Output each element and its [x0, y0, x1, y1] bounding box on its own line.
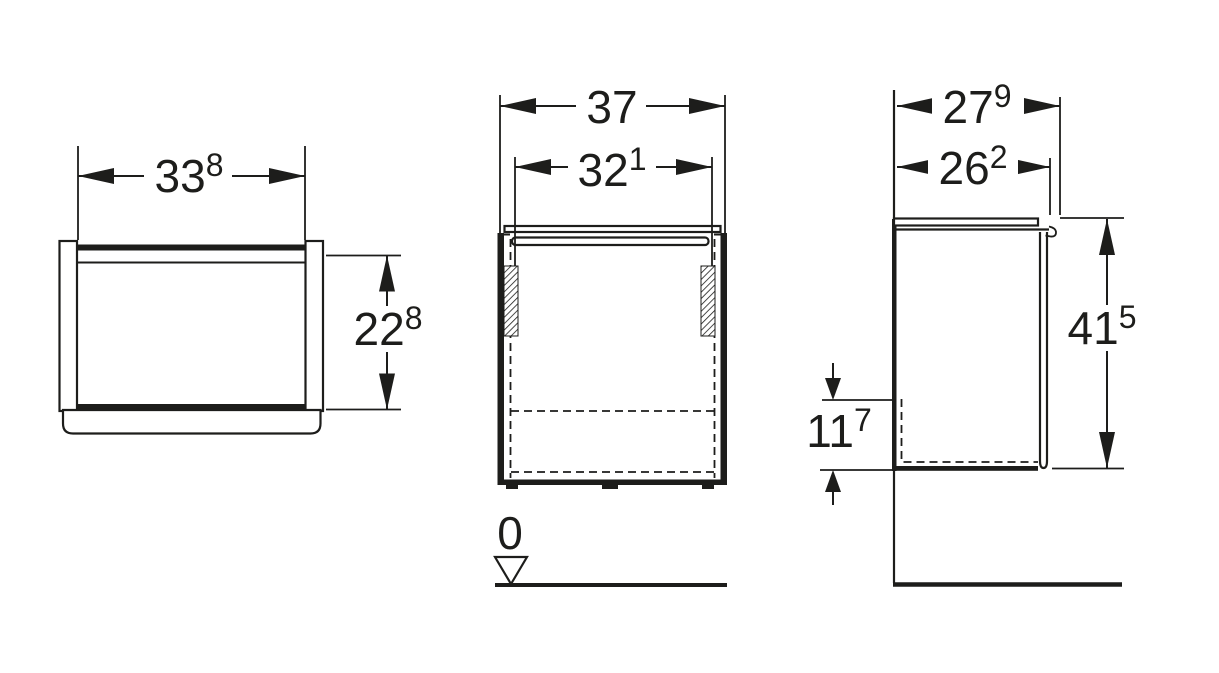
- arrow-down-icon: [825, 378, 841, 400]
- front-door-bottom-edge: [77, 404, 306, 410]
- dim-front-width: 338: [78, 146, 305, 240]
- technical-drawing: 338 228: [0, 0, 1219, 673]
- cabinet-back-panel: [892, 219, 897, 471]
- plan-foot-left: [506, 485, 518, 489]
- dim-side-bottom-clearance: 117: [806, 363, 893, 505]
- front-view: 338 228: [60, 146, 431, 434]
- front-plinth: [63, 410, 321, 434]
- front-top-rail: [77, 245, 306, 251]
- arrow-left-icon: [78, 168, 114, 184]
- plan-view: 37 321 0: [495, 81, 727, 585]
- side-hidden-cutout: [902, 399, 1039, 462]
- front-right-side-panel: [306, 241, 324, 411]
- datum-triangle-icon: [495, 557, 527, 584]
- datum-marker: 0: [495, 507, 727, 585]
- arrow-right-icon: [1024, 98, 1060, 114]
- arrow-right-icon: [689, 98, 725, 114]
- arrow-right-icon: [676, 159, 712, 175]
- plan-foot-center: [602, 485, 618, 489]
- datum-label: 0: [497, 507, 523, 559]
- drawing-canvas: 338 228: [0, 0, 1219, 673]
- plan-right-wall: [721, 233, 728, 485]
- arrow-left-icon: [897, 159, 933, 175]
- arrow-up-icon: [379, 256, 395, 292]
- plan-back-edge: [498, 480, 727, 486]
- side-top-panel: [894, 219, 1038, 226]
- plan-runner-left: [504, 266, 518, 336]
- arrow-down-icon: [1099, 432, 1115, 468]
- dim-plan-overall-width-label: 37: [586, 81, 637, 133]
- side-door-panel: [1040, 232, 1047, 468]
- arrow-right-icon: [269, 168, 305, 184]
- dim-side-bottom-clearance-label: 117: [806, 402, 872, 457]
- plan-runner-right: [701, 266, 715, 336]
- arrow-left-icon: [515, 159, 551, 175]
- dim-side-internal-depth: 262: [897, 139, 1050, 215]
- side-bottom-panel: [894, 466, 1038, 471]
- plan-door-front: [505, 226, 721, 232]
- arrow-right-icon: [1014, 159, 1050, 175]
- dim-front-height: 228: [326, 256, 430, 410]
- plan-door-inner-profile: [512, 238, 709, 246]
- side-view: 279 262 415 117: [806, 78, 1142, 585]
- arrow-up-icon: [825, 470, 841, 492]
- dim-plan-internal-width: 321: [515, 141, 712, 266]
- front-left-side-panel: [60, 241, 78, 411]
- arrow-down-icon: [379, 374, 395, 410]
- arrow-left-icon: [897, 98, 933, 114]
- arrow-left-icon: [500, 98, 536, 114]
- dim-side-height: 415: [1052, 218, 1142, 469]
- plan-left-wall: [498, 233, 505, 485]
- plan-foot-right: [702, 485, 714, 489]
- arrow-up-icon: [1099, 219, 1115, 255]
